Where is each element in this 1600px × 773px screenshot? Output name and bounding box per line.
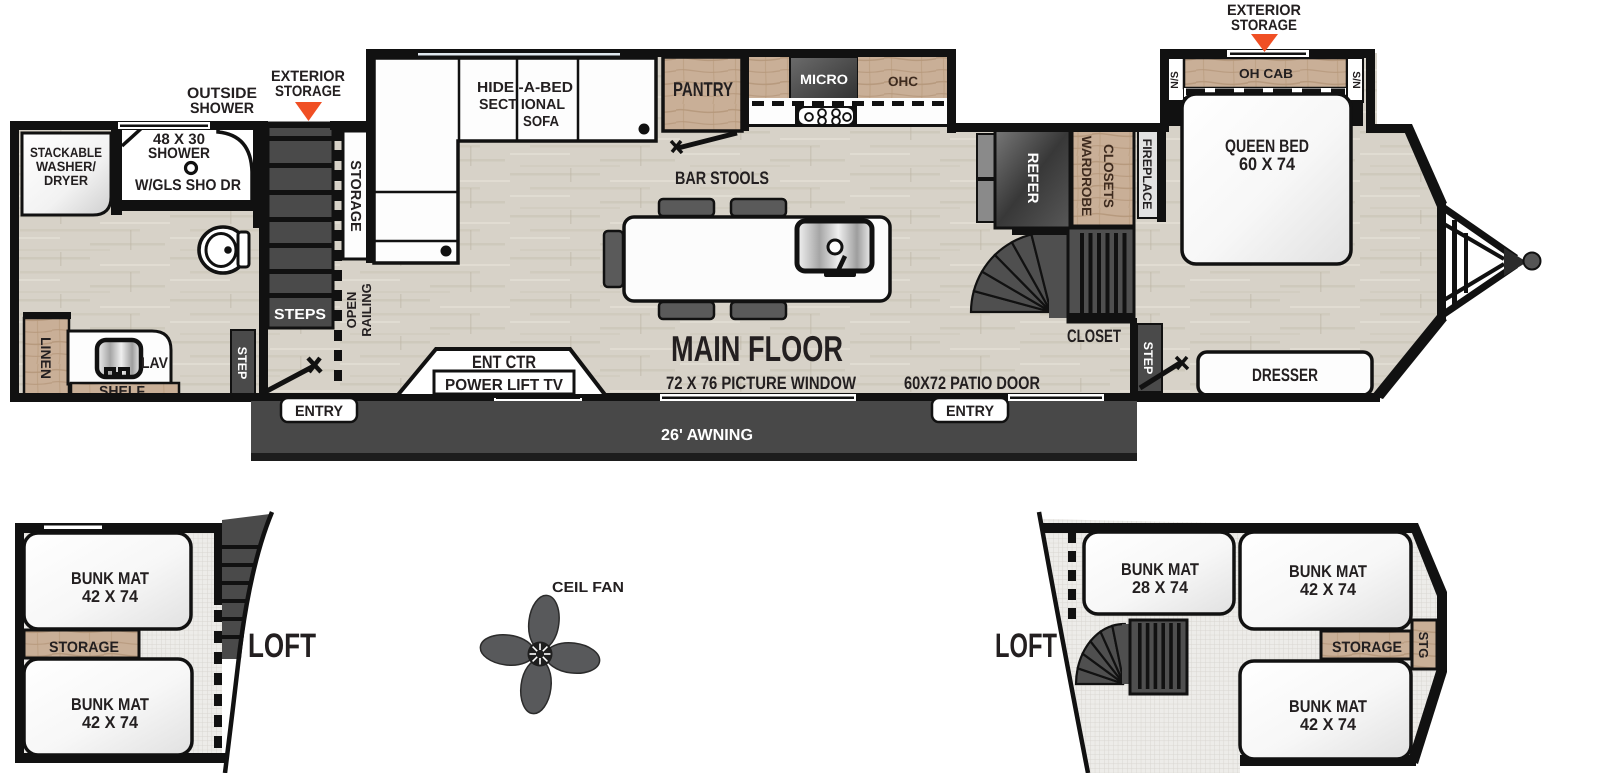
svg-text:FIREPLACE: FIREPLACE: [1140, 139, 1154, 210]
svg-text:LAV: LAV: [141, 355, 169, 372]
svg-text:N/S: N/S: [1169, 71, 1181, 89]
svg-text:S/N: S/N: [1350, 71, 1362, 89]
svg-text:OH CAB: OH CAB: [1239, 66, 1293, 81]
svg-text:BAR STOOLS: BAR STOOLS: [675, 168, 769, 188]
svg-text:26' AWNING: 26' AWNING: [661, 427, 753, 444]
svg-text:ENTRY: ENTRY: [295, 403, 343, 420]
svg-text:ENT CTR: ENT CTR: [472, 352, 536, 372]
svg-text:BUNK MAT: BUNK MAT: [71, 695, 150, 714]
svg-text:LOFT: LOFT: [248, 627, 316, 665]
svg-text:OPEN: OPEN: [344, 292, 359, 329]
svg-text:42 X 74: 42 X 74: [1300, 580, 1357, 599]
svg-text:42 X 74: 42 X 74: [1300, 715, 1357, 734]
svg-text:60X72 PATIO DOOR: 60X72 PATIO DOOR: [904, 373, 1040, 393]
svg-text:28 X 74: 28 X 74: [1132, 578, 1189, 597]
svg-text:STEP: STEP: [235, 347, 249, 380]
svg-text:DRYER: DRYER: [44, 173, 88, 188]
svg-text:SOFA: SOFA: [523, 114, 559, 130]
svg-text:W/GLS SHO DR: W/GLS SHO DR: [135, 177, 241, 194]
svg-text:HIDE -A-BED: HIDE -A-BED: [477, 80, 573, 96]
svg-text:REFER: REFER: [1024, 153, 1041, 204]
svg-text:STORAGE: STORAGE: [49, 639, 119, 656]
svg-text:LOFT: LOFT: [995, 627, 1057, 665]
svg-text:QUEEN BED: QUEEN BED: [1225, 136, 1309, 156]
svg-text:LINEN: LINEN: [38, 337, 54, 379]
svg-text:WASHER/: WASHER/: [36, 159, 96, 174]
svg-text:CLOSETS: CLOSETS: [1101, 144, 1116, 208]
svg-text:BUNK MAT: BUNK MAT: [71, 569, 150, 588]
svg-text:BUNK MAT: BUNK MAT: [1289, 562, 1368, 581]
svg-text:OHC: OHC: [888, 74, 918, 89]
svg-text:BUNK MAT: BUNK MAT: [1121, 560, 1200, 579]
svg-text:60 X 74: 60 X 74: [1239, 154, 1295, 174]
svg-text:STORAGE: STORAGE: [1231, 17, 1297, 34]
svg-text:CEIL FAN: CEIL FAN: [552, 580, 624, 596]
svg-text:POWER LIFT TV: POWER LIFT TV: [445, 377, 563, 394]
svg-text:STACKABLE: STACKABLE: [30, 145, 102, 160]
svg-text:WARDROBE: WARDROBE: [1079, 136, 1094, 216]
svg-text:42 X 74: 42 X 74: [82, 587, 139, 606]
svg-text:STORAGE: STORAGE: [1332, 639, 1402, 656]
svg-text:DRESSER: DRESSER: [1252, 365, 1318, 385]
svg-text:SHOWER: SHOWER: [148, 145, 210, 162]
svg-text:MICRO: MICRO: [800, 72, 848, 87]
svg-text:STEP: STEP: [1141, 342, 1155, 375]
svg-text:STEPS: STEPS: [274, 307, 326, 323]
svg-text:SECT IONAL: SECT IONAL: [479, 97, 565, 113]
svg-text:STORAGE: STORAGE: [347, 160, 363, 232]
svg-text:72 X 76 PICTURE WINDOW: 72 X 76 PICTURE WINDOW: [666, 373, 856, 393]
svg-text:STG: STG: [1416, 632, 1431, 659]
svg-text:MAIN FLOOR: MAIN FLOOR: [671, 328, 843, 369]
svg-text:ENTRY: ENTRY: [946, 403, 994, 420]
svg-text:SHOWER: SHOWER: [190, 100, 254, 117]
svg-text:PANTRY: PANTRY: [673, 79, 733, 101]
svg-text:BUNK MAT: BUNK MAT: [1289, 697, 1368, 716]
svg-text:STORAGE: STORAGE: [275, 83, 341, 100]
svg-text:CLOSET: CLOSET: [1067, 326, 1121, 346]
svg-text:RAILING: RAILING: [359, 283, 374, 336]
svg-text:42 X 74: 42 X 74: [82, 713, 139, 732]
